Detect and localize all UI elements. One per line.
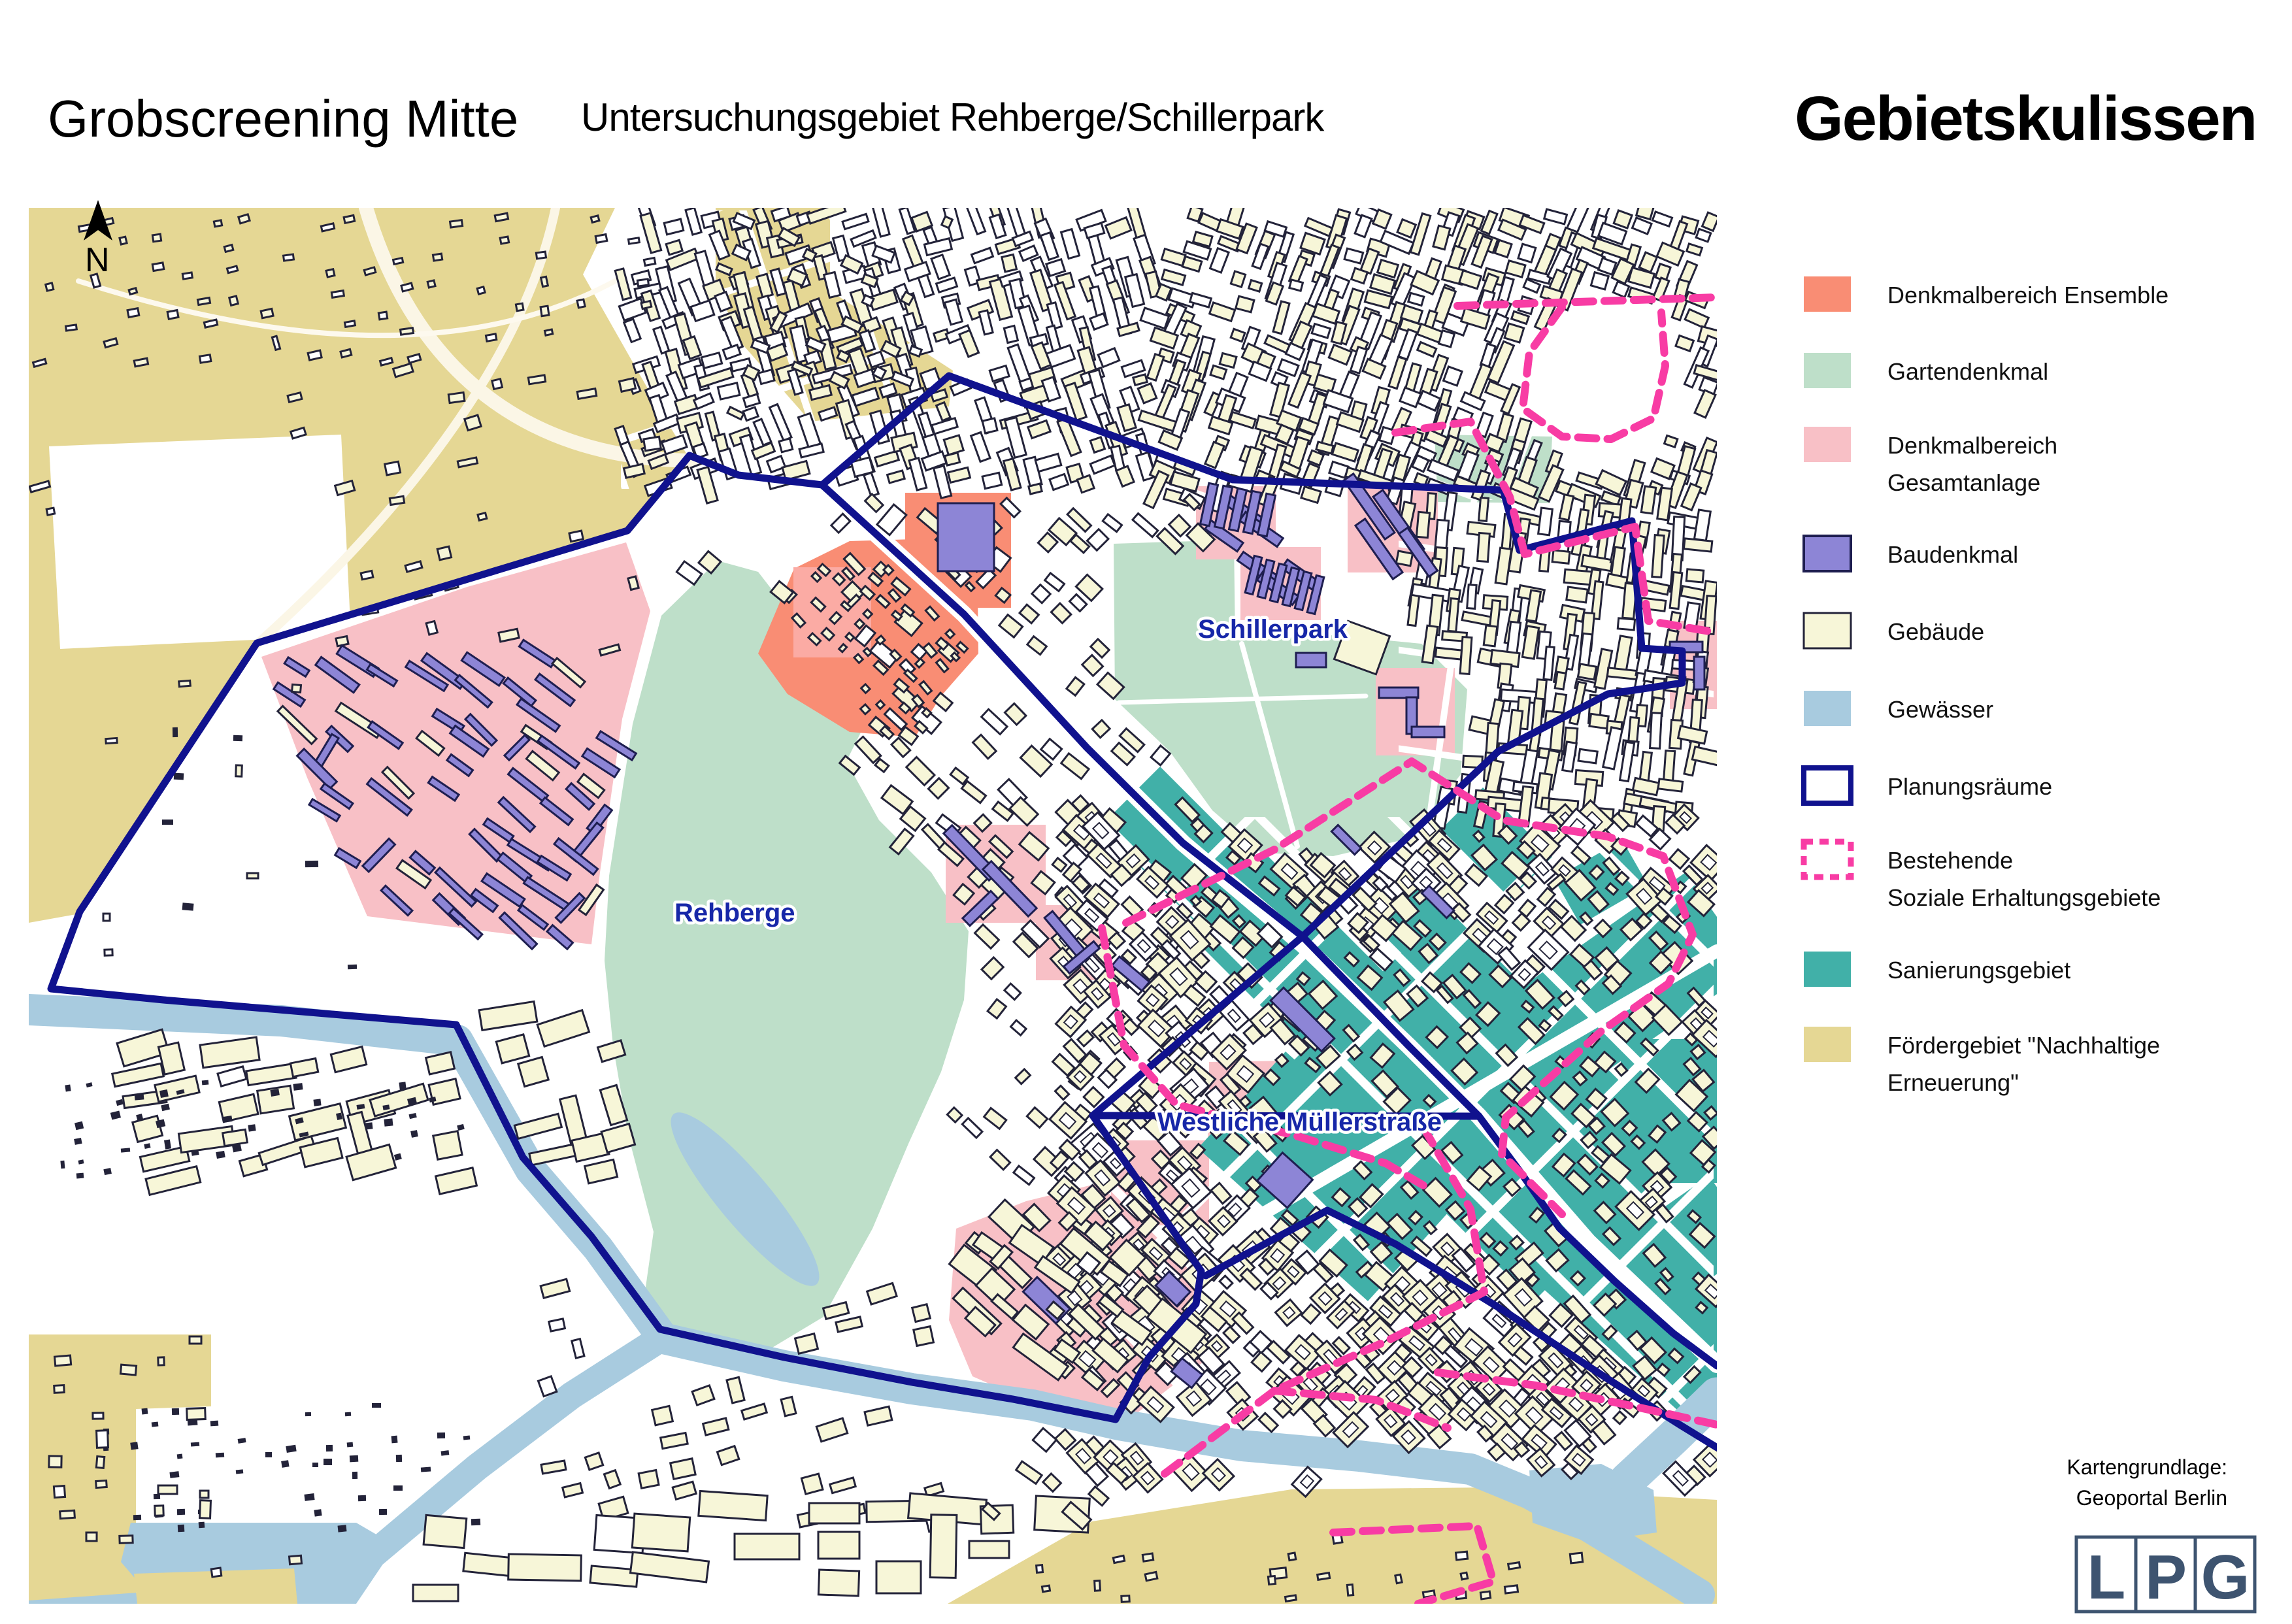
svg-text:Geoportal Berlin: Geoportal Berlin bbox=[2076, 1486, 2227, 1510]
svg-text:Denkmalbereich Ensemble: Denkmalbereich Ensemble bbox=[1887, 282, 2168, 308]
svg-text:Denkmalbereich: Denkmalbereich bbox=[1887, 432, 2057, 459]
svg-text:Westliche Müllerstraße: Westliche Müllerstraße bbox=[1157, 1108, 1442, 1136]
svg-text:Soziale Erhaltungsgebiete: Soziale Erhaltungsgebiete bbox=[1887, 884, 2161, 911]
svg-text:Gebietskulissen: Gebietskulissen bbox=[1795, 84, 2256, 154]
svg-text:Sanierungsgebiet: Sanierungsgebiet bbox=[1887, 957, 2070, 984]
svg-text:Gesamtanlage: Gesamtanlage bbox=[1887, 469, 2040, 496]
svg-text:Grobscreening Mitte: Grobscreening Mitte bbox=[48, 90, 518, 148]
svg-text:Untersuchungsgebiet Rehberge/S: Untersuchungsgebiet Rehberge/Schillerpar… bbox=[581, 95, 1325, 139]
svg-text:Gebäude: Gebäude bbox=[1887, 618, 1984, 645]
svg-text:Gartendenkmal: Gartendenkmal bbox=[1887, 358, 2048, 385]
svg-text:Planungsräume: Planungsräume bbox=[1887, 773, 2052, 800]
svg-text:Rehberge: Rehberge bbox=[674, 899, 795, 927]
svg-text:L: L bbox=[2087, 1542, 2126, 1612]
svg-text:G: G bbox=[2201, 1542, 2250, 1612]
svg-text:Gewässer: Gewässer bbox=[1887, 696, 1993, 723]
svg-text:N: N bbox=[85, 241, 110, 279]
svg-text:Bestehende: Bestehende bbox=[1887, 847, 2013, 874]
svg-text:Fördergebiet "Nachhaltige: Fördergebiet "Nachhaltige bbox=[1887, 1032, 2160, 1059]
svg-text:Baudenkmal: Baudenkmal bbox=[1887, 541, 2018, 568]
svg-text:Kartengrundlage:: Kartengrundlage: bbox=[2067, 1455, 2227, 1479]
svg-text:Erneuerung": Erneuerung" bbox=[1887, 1069, 2019, 1096]
svg-text:Schillerpark: Schillerpark bbox=[1198, 615, 1348, 644]
svg-text:P: P bbox=[2145, 1542, 2187, 1612]
